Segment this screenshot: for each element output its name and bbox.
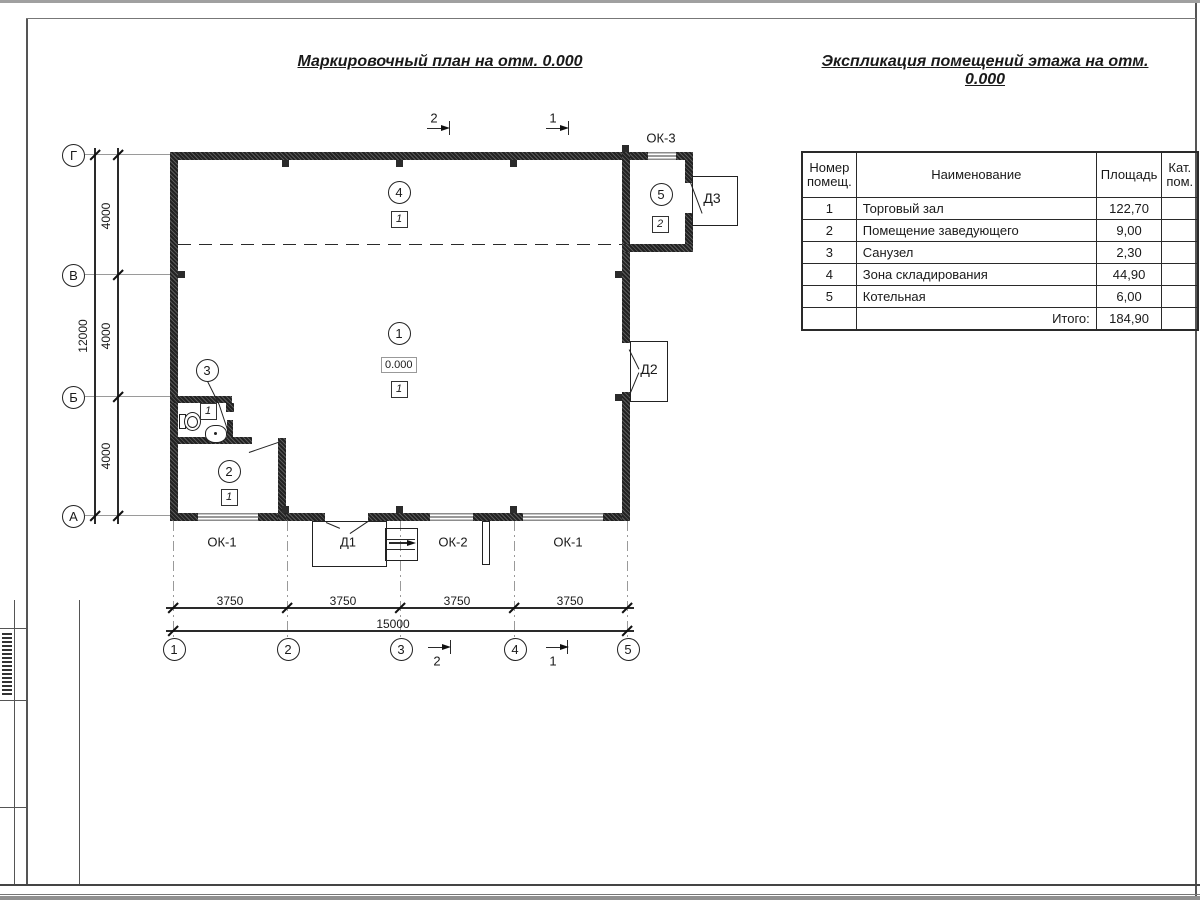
- header-category: Кат.пом.: [1162, 152, 1198, 198]
- pilaster: [396, 506, 403, 513]
- stamp-vertical-text: [2, 633, 12, 697]
- axis-bubble-a: А: [62, 505, 85, 528]
- axis-bubble-4: 4: [504, 638, 527, 661]
- section-2-top-arrow: [441, 125, 453, 131]
- frame-left-line: [26, 18, 28, 884]
- table-total-row: Итого: 184,90: [802, 308, 1198, 331]
- zone-boundary-line: [178, 244, 622, 246]
- axis-ext-line: [85, 274, 170, 275]
- cell-name: Санузел: [856, 242, 1096, 264]
- cell-cat: [1162, 308, 1198, 331]
- cell-cat: [1162, 286, 1198, 308]
- section-mark-label: 2: [433, 654, 440, 669]
- table-row: 1 Торговый зал 122,70: [802, 198, 1198, 220]
- cell-area: 6,00: [1096, 286, 1162, 308]
- section-mark-label: 1: [549, 111, 556, 126]
- pilaster: [396, 160, 403, 167]
- stamp-divider-1: [0, 628, 26, 629]
- wall-room3-top-stub: [226, 403, 234, 412]
- axis-bubble-1: 1: [163, 638, 186, 661]
- table-row: 3 Санузел 2,30: [802, 242, 1198, 264]
- header-area: Площадь: [1096, 152, 1162, 198]
- cell-num: [802, 308, 856, 331]
- axis-ext-line: [85, 515, 170, 516]
- section-1-top-arrow: [560, 125, 572, 131]
- header-name: Наименование: [856, 152, 1096, 198]
- drawing-sheet: Маркировочный план на отм. 0.000 Эксплик…: [0, 0, 1200, 900]
- label-ok1-left: ОК-1: [207, 535, 236, 550]
- door-d1-opening: [325, 513, 368, 521]
- cell-num: 1: [802, 198, 856, 220]
- sheet-bottom-line: [0, 894, 1200, 895]
- pilaster: [282, 160, 289, 167]
- room-cat-3: 1: [200, 403, 217, 420]
- axis-bubble-b: Б: [62, 386, 85, 409]
- section-2-bottom-arrow: [442, 644, 454, 650]
- cell-name: Зона складирования: [856, 264, 1096, 286]
- cell-name: Помещение заведующего: [856, 220, 1096, 242]
- cell-name: Котельная: [856, 286, 1096, 308]
- window-ok1-right: [523, 513, 603, 521]
- toilet-bowl-inner: [187, 416, 198, 428]
- axis-bubble-2: 2: [277, 638, 300, 661]
- cell-cat: [1162, 198, 1198, 220]
- cell-num: 4: [802, 264, 856, 286]
- room-cat-2: 1: [221, 489, 238, 506]
- dim-line-12000: [94, 148, 95, 524]
- room-tag-4: 4: [388, 181, 411, 204]
- dim-total-value: 12000: [76, 319, 90, 352]
- plan-title: Маркировочный план на отм. 0.000: [280, 53, 600, 71]
- dim-value: 4000: [99, 443, 113, 470]
- wall-top: [170, 152, 693, 160]
- pilaster: [622, 145, 629, 152]
- cell-area: 2,30: [1096, 242, 1162, 264]
- frame-bottom-line: [0, 884, 1200, 886]
- pilaster: [178, 271, 185, 278]
- table-row: 5 Котельная 6,00: [802, 286, 1198, 308]
- dim-line-4000: [117, 148, 118, 524]
- cell-area: 44,90: [1096, 264, 1162, 286]
- cell-num: 5: [802, 286, 856, 308]
- dim-value: 3750: [444, 594, 471, 608]
- axis-ext-line: [514, 521, 515, 638]
- label-d3: Д3: [703, 190, 720, 206]
- pilaster: [510, 160, 517, 167]
- frame-top-line: [26, 18, 1196, 19]
- room-tag-1: 1: [388, 322, 411, 345]
- cell-cat: [1162, 242, 1198, 264]
- window-ok2: [430, 513, 473, 521]
- door-room2-leaf: [249, 441, 282, 453]
- cell-num: 2: [802, 220, 856, 242]
- stamp-column-line: [79, 600, 80, 884]
- cell-cat: [1162, 264, 1198, 286]
- wall-left: [170, 152, 178, 521]
- dim-value: 3750: [330, 594, 357, 608]
- dim-value: 4000: [99, 203, 113, 230]
- cell-area: 122,70: [1096, 198, 1162, 220]
- pilaster: [615, 271, 622, 278]
- table-row: 2 Помещение заведующего 9,00: [802, 220, 1198, 242]
- sheet-top-edge: [0, 0, 1200, 3]
- room-cat-4: 1: [391, 211, 408, 228]
- level-mark: 0.000: [381, 357, 417, 373]
- axis-ext-line: [85, 396, 170, 397]
- label-d1: Д1: [340, 535, 356, 550]
- dim-total-value: 15000: [376, 617, 409, 631]
- dim-value: 3750: [557, 594, 584, 608]
- label-ok2: ОК-2: [438, 535, 467, 550]
- section-1-bottom-arrow: [560, 644, 572, 650]
- window-ok3: [648, 152, 676, 160]
- room-tag-5: 5: [650, 183, 673, 206]
- pilaster: [282, 506, 289, 513]
- sheet-right-edge: [1195, 3, 1197, 896]
- steps-arrow-head: [407, 540, 419, 546]
- sink-drain-dot: [214, 432, 218, 436]
- table-row: 4 Зона складирования 44,90: [802, 264, 1198, 286]
- cell-area: 9,00: [1096, 220, 1162, 242]
- section-mark-label: 1: [549, 654, 556, 669]
- room-schedule-table: Номерпомещ. Наименование Площадь Кат.пом…: [801, 151, 1199, 331]
- room-cat-1: 1: [391, 381, 408, 398]
- axis-bubble-v: В: [62, 264, 85, 287]
- total-label: Итого:: [856, 308, 1096, 331]
- label-ok1-right: ОК-1: [553, 535, 582, 550]
- stamp-divider-3: [0, 807, 26, 808]
- axis-ext-line: [173, 521, 174, 638]
- header-number: Номерпомещ.: [802, 152, 856, 198]
- schedule-title: Экспликация помещений этажа на отм. 0.00…: [800, 53, 1170, 89]
- table-header-row: Номерпомещ. Наименование Площадь Кат.пом…: [802, 152, 1198, 198]
- section-mark-label: 2: [430, 111, 437, 126]
- dim-value: 4000: [99, 323, 113, 350]
- room-tag-3: 3: [196, 359, 219, 382]
- axis-ext-line: [85, 154, 170, 155]
- axis-bubble-3: 3: [390, 638, 413, 661]
- window-ok1-left: [198, 513, 258, 521]
- total-value: 184,90: [1096, 308, 1162, 331]
- cell-num: 3: [802, 242, 856, 264]
- wall-right-lower: [622, 392, 630, 521]
- axis-ext-line: [287, 521, 288, 638]
- axis-bubble-g: Г: [62, 144, 85, 167]
- downpipe-post: [482, 521, 490, 565]
- room-tag-2: 2: [218, 460, 241, 483]
- dim-value: 3750: [217, 594, 244, 608]
- wall-room5-bottom: [622, 244, 693, 252]
- room-cat-5: 2: [652, 216, 669, 233]
- stamp-inner-line: [14, 600, 15, 884]
- label-d2: Д2: [640, 361, 657, 377]
- sheet-bottom-edge: [0, 896, 1200, 900]
- axis-ext-line: [627, 521, 628, 638]
- stamp-divider-2: [0, 700, 26, 701]
- pilaster: [510, 506, 517, 513]
- cell-name: Торговый зал: [856, 198, 1096, 220]
- axis-bubble-5: 5: [617, 638, 640, 661]
- label-ok3: ОК-3: [646, 131, 675, 146]
- pilaster: [615, 394, 622, 401]
- cell-cat: [1162, 220, 1198, 242]
